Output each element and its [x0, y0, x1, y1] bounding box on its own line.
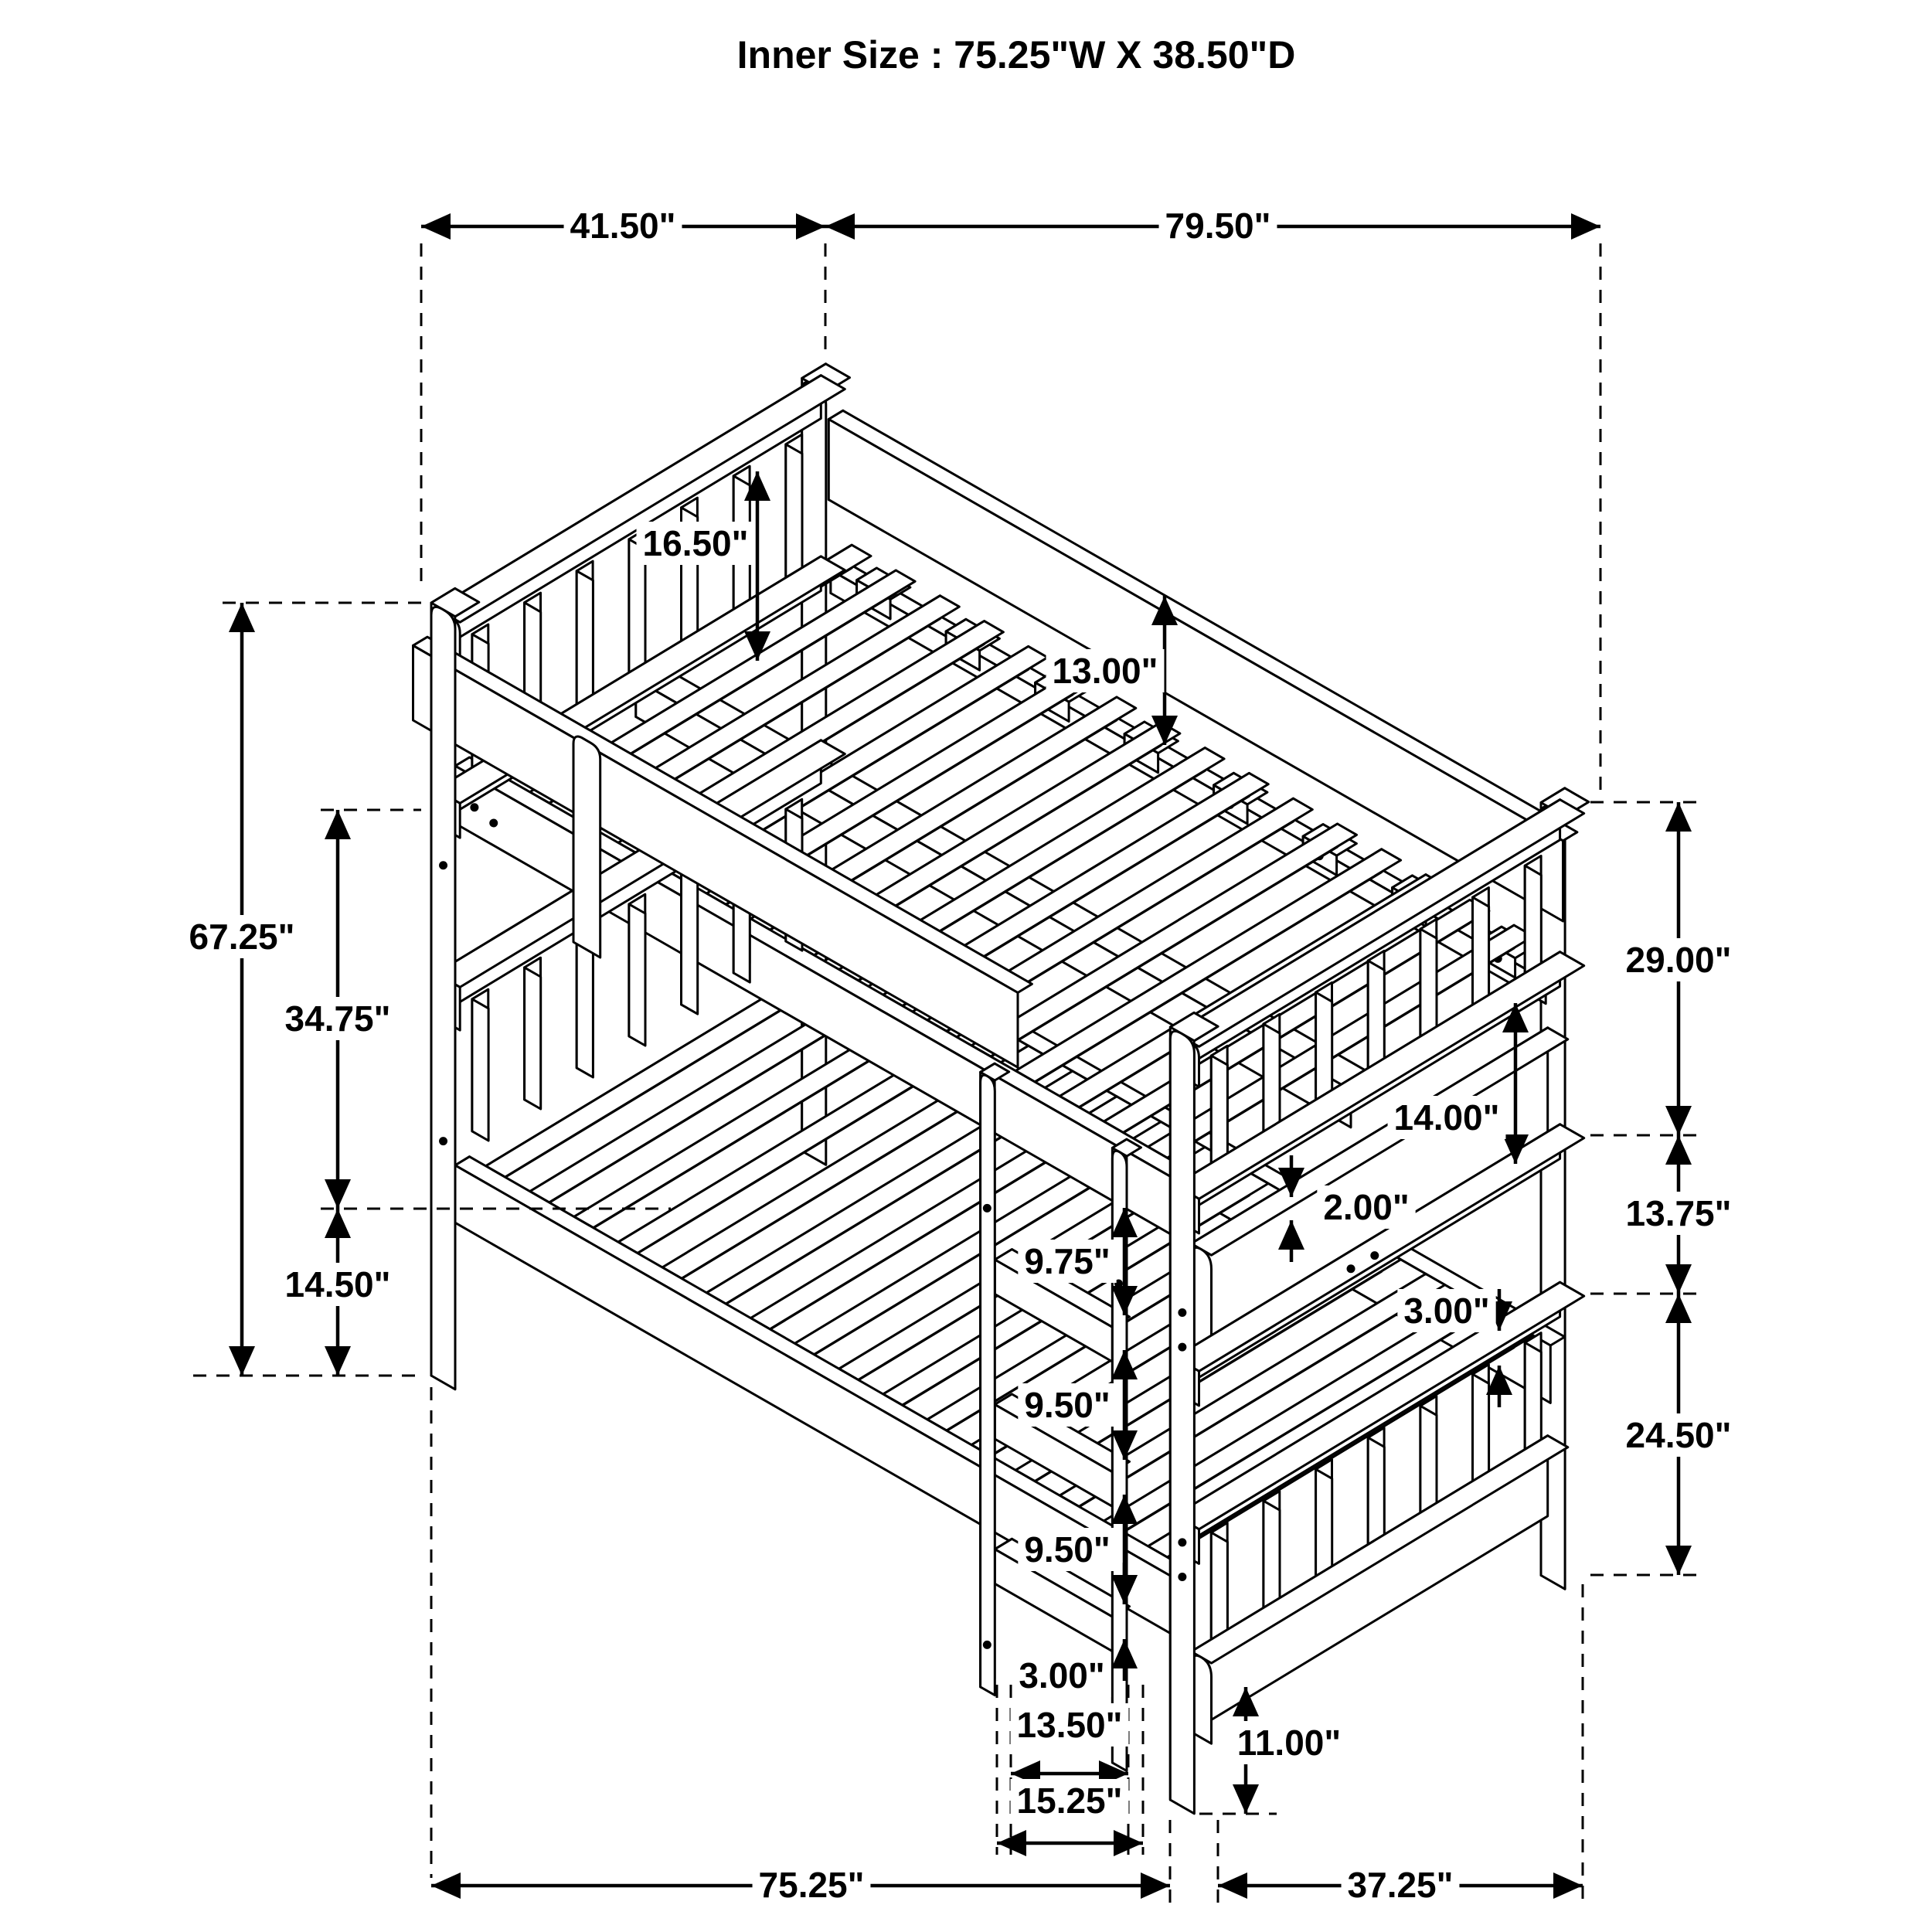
arrowhead [825, 213, 855, 240]
dim-label-lower-rail-height: 14.50" [285, 1264, 391, 1304]
screw-dot [439, 1137, 447, 1145]
dim-label-bottom-depth: 37.25" [1348, 1865, 1454, 1905]
arrowhead [1571, 213, 1600, 240]
dim-label-ladder-gap-lower: 9.50" [1024, 1529, 1110, 1570]
screw-dot [1178, 1308, 1186, 1317]
dim-label-slat-thickness: 2.00" [1323, 1187, 1409, 1227]
screw-dot [1370, 1251, 1379, 1260]
arrowhead [325, 1179, 351, 1209]
arrowhead [1665, 802, 1692, 832]
screw-dot [1347, 1264, 1355, 1273]
dim-label-total-height: 67.25" [189, 917, 295, 957]
arrowhead [229, 1346, 255, 1376]
dim-label-ladder-gap-top: 9.75" [1024, 1241, 1110, 1281]
screw-dot [470, 803, 478, 811]
diagram-page: Inner Size : 75.25"W X 38.50"D 41.50" 79… [0, 0, 1932, 1932]
arrowhead [431, 1872, 461, 1899]
dim-label-top-width-left: 41.50" [570, 206, 676, 246]
bunk-bed-dimension-diagram: Inner Size : 75.25"W X 38.50"D 41.50" 79… [0, 0, 1932, 1932]
dim-label-floor-clearance: 11.00" [1237, 1723, 1341, 1763]
dim-label-ladder-inner-width: 13.50" [1017, 1705, 1123, 1745]
screw-dot [439, 861, 447, 869]
guard-rail-end-board [573, 736, 600, 957]
screw-dot [983, 1204, 992, 1213]
dim-label-ladder-gap-mid: 9.50" [1024, 1385, 1110, 1425]
dim-label-bottom-length: 75.25" [759, 1865, 865, 1905]
arrowhead [1665, 1135, 1692, 1165]
dim-label-footboard-rail-thickness: 3.00" [1403, 1291, 1489, 1331]
headboard-spindle [472, 999, 488, 1141]
screw-dot [983, 1641, 992, 1649]
dim-label-guard-rail-gap: 14.00" [1394, 1097, 1500, 1138]
dim-label-ladder-rung-thickness: 3.00" [1019, 1655, 1104, 1696]
dim-label-ladder-outer-width: 15.25" [1017, 1781, 1123, 1821]
arrowhead [1665, 1264, 1692, 1294]
headboard-spindle [577, 936, 593, 1077]
screw-dot [1178, 1538, 1186, 1546]
arrowhead [1218, 1872, 1247, 1899]
screw-dot [1178, 1573, 1186, 1581]
diagram-title: Inner Size : 75.25"W X 38.50"D [737, 33, 1296, 77]
headboard-spindle [525, 968, 541, 1109]
ladder-stile [981, 1075, 995, 1695]
dim-label-right-upper: 29.00" [1626, 940, 1732, 980]
arrowhead [325, 810, 351, 839]
arrowhead [1665, 1546, 1692, 1575]
screw-dot [1178, 1343, 1186, 1352]
arrowhead [1141, 1872, 1170, 1899]
arrowhead [796, 213, 825, 240]
dim-label-headboard-above-deck: 16.50" [643, 523, 749, 563]
bed-post-front-right [1170, 1031, 1194, 1813]
dim-label-right-middle: 13.75" [1626, 1193, 1732, 1233]
arrowhead [421, 213, 451, 240]
arrowhead [325, 1209, 351, 1238]
arrowhead [1665, 1106, 1692, 1135]
arrowhead [325, 1346, 351, 1376]
dim-label-back-rail-above-deck: 13.00" [1053, 651, 1158, 691]
arrowhead [229, 603, 255, 632]
dim-label-upper-rail-height: 34.75" [285, 998, 391, 1039]
dim-label-right-lower: 24.50" [1626, 1415, 1732, 1455]
arrowhead [1665, 1294, 1692, 1323]
screw-dot [489, 819, 498, 828]
dim-label-top-width-right: 79.50" [1165, 206, 1271, 246]
arrowhead [1553, 1872, 1583, 1899]
headboard-spindle [629, 904, 645, 1046]
headboard-spindle [682, 872, 698, 1014]
bed-line-art [413, 364, 1589, 1814]
lower-front-rail [455, 1157, 1185, 1576]
bed-post-front-left [431, 607, 455, 1389]
arrowhead [1233, 1784, 1259, 1814]
